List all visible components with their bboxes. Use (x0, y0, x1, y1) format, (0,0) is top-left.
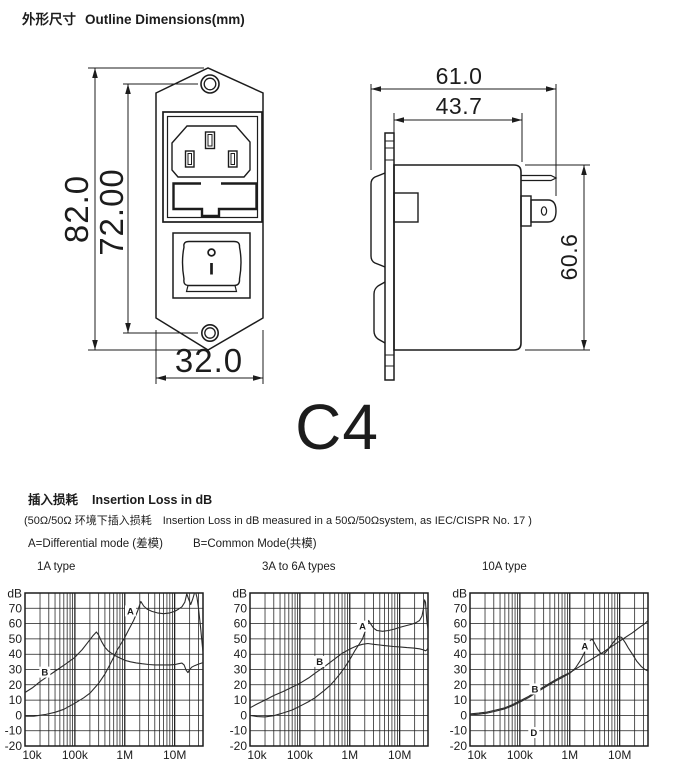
side-dimensions (371, 84, 590, 350)
curve-label-A: A (359, 622, 366, 633)
y-tick-label: 40 (9, 647, 23, 661)
y-tick-label: 0 (240, 708, 247, 722)
grid (470, 593, 648, 746)
y-tick-label: 40 (454, 647, 468, 661)
chart-plot-area: dB706050403020100-10-2010k100k1M10MAB (230, 580, 446, 773)
y-tick-label: -20 (5, 739, 22, 753)
x-tick-label: 10M (388, 748, 411, 762)
y-tick-label: -20 (450, 739, 467, 753)
chart-title: 10A type (482, 559, 666, 580)
chart-1a-type: 1A type dB706050403020100-10-2010k100k1M… (5, 559, 221, 773)
y-tick-label: 70 (454, 601, 468, 615)
y-axis-labels: dB706050403020100-10-20 (230, 587, 247, 754)
y-tick-label: 40 (234, 647, 248, 661)
y-tick-label: 50 (9, 632, 23, 646)
y-axis-labels: dB706050403020100-10-20 (5, 587, 22, 754)
y-tick-label: 30 (9, 663, 23, 677)
insertion-loss-plot: dB706050403020100-10-2010k100k1M10MABD (450, 580, 666, 772)
rocker-lip (187, 286, 237, 292)
chart-title: 1A type (37, 559, 221, 580)
y-axis-unit: dB (452, 587, 467, 601)
x-tick-label: 10M (163, 748, 186, 762)
y-tick-label: 60 (9, 617, 23, 631)
dim-label-overall-height: 82.0 (58, 175, 95, 243)
x-tick-label: 1M (116, 748, 133, 762)
iec-inlet-recess (172, 126, 250, 177)
mode-b-label: B=Common Mode(共模) (193, 538, 317, 550)
insertion-loss-heading: 插入损耗Insertion Loss in dB (28, 489, 212, 508)
curve-label-B: B (531, 684, 538, 695)
curve-label-A: A (127, 606, 134, 617)
curve-label-B: B (41, 668, 48, 679)
y-tick-label: -10 (450, 724, 467, 738)
grid (25, 593, 203, 746)
y-tick-label: 30 (234, 663, 248, 677)
dim-label-width: 32.0 (175, 342, 243, 379)
chart-10a-type: 10A type dB706050403020100-10-2010k100k1… (450, 559, 666, 773)
y-axis-unit: dB (7, 587, 22, 601)
y-tick-label: 20 (454, 678, 468, 692)
y-tick-label: 70 (234, 601, 248, 615)
y-tick-label: 50 (234, 632, 248, 646)
line-pin-slot (188, 154, 192, 165)
mounting-hole-bottom-inner (205, 328, 215, 338)
mode-a-label: A=Differential mode (差模) (28, 538, 163, 550)
x-axis-labels: 10k100k1M10M (467, 748, 631, 762)
chart-3a-6a-types: 3A to 6A types dB706050403020100-10-2010… (230, 559, 446, 773)
dim-label-overall-depth: 61.0 (436, 63, 483, 89)
fuse-holder-block (394, 193, 418, 222)
y-tick-label: 0 (15, 708, 22, 722)
y-tick-label: 70 (9, 601, 23, 615)
annotation-label-D: D (530, 728, 537, 739)
x-tick-label: 100k (287, 748, 314, 762)
y-tick-label: 10 (454, 693, 468, 707)
insertion-loss-heading-en: Insertion Loss in dB (92, 493, 212, 507)
front-view-drawing (156, 68, 263, 350)
model-label: C4 (0, 394, 674, 460)
earth-pin-slot (208, 135, 212, 147)
y-tick-label: -10 (5, 724, 22, 738)
x-tick-label: 1M (341, 748, 358, 762)
y-tick-label: 10 (234, 693, 248, 707)
mode-legend: A=Differential mode (差模)B=Common Mode(共模… (28, 535, 317, 551)
dim-label-body-depth: 43.7 (436, 93, 483, 119)
y-tick-label: -20 (230, 739, 247, 753)
dim-label-body-height: 60.6 (556, 234, 582, 281)
x-axis-labels: 10k100k1M10M (22, 748, 186, 762)
dim-label-hole-spacing: 72.00 (93, 168, 130, 256)
inlet-bezel-outer (163, 112, 262, 222)
y-tick-label: 0 (460, 708, 467, 722)
x-axis-labels: 10k100k1M10M (247, 748, 411, 762)
insertion-loss-plot: dB706050403020100-10-2010k100k1M10MAB (230, 580, 446, 772)
y-tick-label: 30 (454, 663, 468, 677)
terminal-blade (531, 200, 556, 222)
switch-off-mark (208, 249, 215, 256)
terminal-hole (541, 207, 546, 215)
mounting-hole-top-inner (204, 78, 216, 90)
x-tick-label: 100k (507, 748, 534, 762)
x-tick-label: 10k (22, 748, 42, 762)
side-view-drawing (371, 133, 556, 380)
x-tick-label: 1M (561, 748, 578, 762)
y-axis-unit: dB (232, 587, 247, 601)
chart-plot-area: dB706050403020100-10-2010k100k1M10MABD (450, 580, 666, 773)
mounting-flange (385, 133, 394, 380)
y-tick-label: 60 (454, 617, 468, 631)
x-tick-label: 10M (608, 748, 631, 762)
ground-tab (521, 176, 556, 181)
neutral-pin-slot (231, 154, 235, 165)
test-condition-text: (50Ω/50Ω 环境下插入损耗 Insertion Loss in dB me… (24, 512, 532, 528)
curve-label-B: B (316, 657, 323, 668)
y-tick-label: -10 (230, 724, 247, 738)
insertion-loss-plot: dB706050403020100-10-2010k100k1M10MAB (5, 580, 221, 772)
y-tick-label: 20 (234, 678, 248, 692)
fuse-drawer (174, 184, 257, 217)
chart-plot-area: dB706050403020100-10-2010k100k1M10MAB (5, 580, 221, 773)
x-tick-label: 10k (467, 748, 487, 762)
switch-protrusion (374, 282, 385, 343)
datasheet-page: 外形尺寸Outline Dimensions(mm) (0, 0, 674, 773)
insertion-loss-heading-zh: 插入损耗 (28, 493, 78, 507)
y-tick-label: 60 (234, 617, 248, 631)
inlet-protrusion (371, 173, 385, 267)
terminal-base (521, 196, 531, 226)
chart-title: 3A to 6A types (262, 559, 446, 580)
curve-label-A: A (581, 642, 588, 653)
x-tick-label: 10k (247, 748, 267, 762)
y-tick-label: 50 (454, 632, 468, 646)
grid (250, 593, 428, 746)
x-tick-label: 100k (62, 748, 89, 762)
y-axis-labels: dB706050403020100-10-20 (450, 587, 467, 754)
y-tick-label: 20 (9, 678, 23, 692)
y-tick-label: 10 (9, 693, 23, 707)
